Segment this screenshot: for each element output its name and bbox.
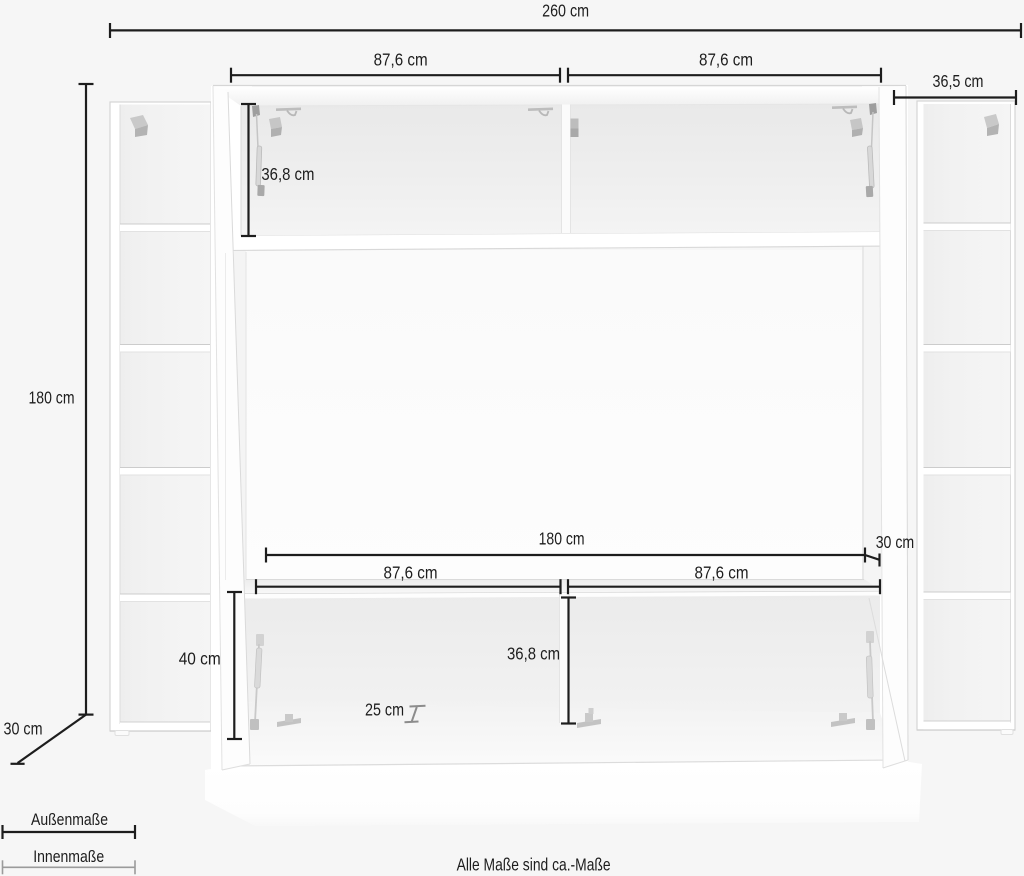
svg-text:36,5 cm: 36,5 cm [933, 71, 984, 91]
svg-text:Außenmaße: Außenmaße [31, 810, 108, 829]
svg-text:Innenmaße: Innenmaße [33, 847, 104, 866]
svg-text:Alle Maße sind ca.-Maße: Alle Maße sind ca.-Maße [457, 855, 611, 875]
svg-text:180 cm: 180 cm [29, 388, 75, 408]
svg-text:87,6 cm: 87,6 cm [374, 50, 428, 70]
svg-text:87,6 cm: 87,6 cm [699, 50, 753, 70]
svg-text:40 cm: 40 cm [179, 649, 221, 669]
svg-text:180 cm: 180 cm [539, 529, 585, 549]
svg-text:30 cm: 30 cm [876, 532, 915, 552]
svg-text:87,6 cm: 87,6 cm [695, 563, 749, 583]
svg-text:260 cm: 260 cm [542, 1, 589, 21]
svg-text:87,6 cm: 87,6 cm [384, 563, 438, 583]
svg-text:30 cm: 30 cm [4, 719, 43, 739]
svg-text:25 cm: 25 cm [365, 700, 404, 720]
svg-text:36,8 cm: 36,8 cm [261, 164, 314, 184]
svg-text:36,8 cm: 36,8 cm [507, 644, 560, 664]
